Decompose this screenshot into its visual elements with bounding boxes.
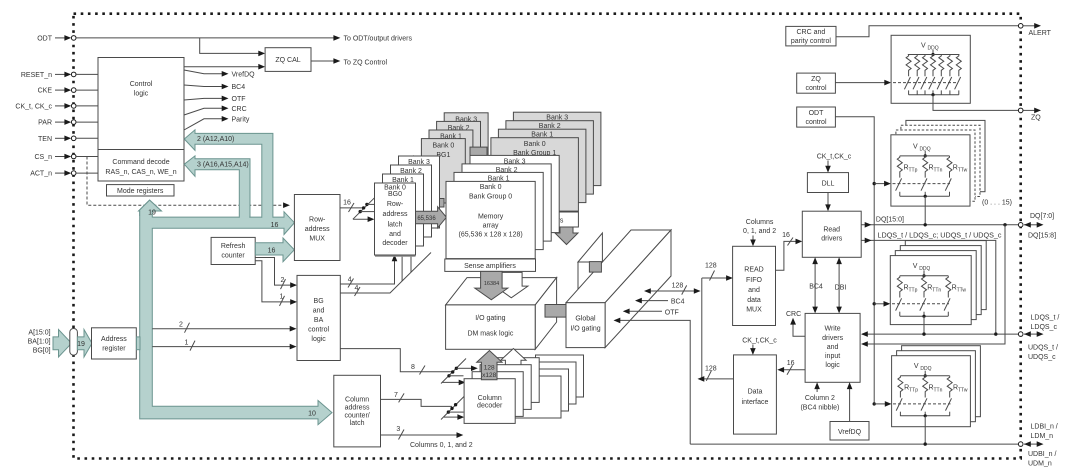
svg-text:OTF: OTF [665, 309, 679, 316]
svg-text:ALERT: ALERT [1029, 30, 1052, 37]
svg-text:(BC4 nibble): (BC4 nibble) [800, 405, 839, 412]
svg-text:Mode registers: Mode registers [117, 188, 164, 195]
svg-text:(0 . . . 15): (0 . . . 15) [982, 200, 1012, 207]
svg-text:logic: logic [311, 336, 326, 343]
svg-text:BG: BG [314, 298, 324, 305]
svg-text:16: 16 [268, 248, 276, 255]
svg-text:Columns: Columns [746, 219, 774, 226]
svg-text:TTn: TTn [934, 168, 943, 174]
svg-text:TTn: TTn [934, 387, 943, 393]
svg-text:CRC: CRC [786, 311, 801, 318]
svg-text:counter: counter [221, 253, 245, 260]
svg-text:Read: Read [823, 226, 840, 233]
svg-text:16: 16 [782, 232, 790, 239]
svg-text:Data: Data [748, 389, 763, 396]
svg-text:READ: READ [744, 267, 763, 274]
svg-text:TTw: TTw [958, 168, 968, 174]
svg-text:CK_t,CK_c: CK_t,CK_c [817, 153, 852, 160]
svg-text:CRC: CRC [232, 106, 247, 113]
svg-text:ODT: ODT [809, 110, 825, 117]
svg-text:CKE: CKE [38, 88, 53, 95]
svg-text:BG[0]: BG[0] [33, 348, 51, 355]
svg-text:I/O gating: I/O gating [475, 315, 505, 322]
svg-text:TTp: TTp [909, 387, 918, 393]
svg-text:1: 1 [185, 339, 189, 346]
svg-text:control: control [308, 327, 329, 334]
svg-text:3 (A16,A15,A14): 3 (A16,A15,A14) [197, 162, 249, 169]
svg-text:ZQ CAL: ZQ CAL [275, 57, 300, 64]
svg-text:register: register [102, 346, 126, 353]
svg-text:V: V [921, 43, 926, 50]
svg-text:decoder: decoder [382, 240, 408, 247]
svg-text:interface: interface [742, 399, 769, 406]
svg-text:latch: latch [388, 221, 403, 228]
svg-text:0, 1, and 2: 0, 1, and 2 [743, 228, 776, 235]
svg-text:input: input [825, 353, 840, 360]
svg-text:CK_t, CK_c: CK_t, CK_c [15, 103, 52, 110]
svg-text:Row-: Row- [387, 201, 404, 208]
svg-text:PAR: PAR [38, 120, 52, 127]
svg-text:data: data [747, 297, 761, 304]
svg-text:Bank Group 0: Bank Group 0 [469, 194, 512, 201]
svg-text:TTp: TTp [909, 168, 918, 174]
svg-text:8: 8 [411, 364, 415, 371]
svg-text:counter/: counter/ [344, 412, 369, 419]
svg-text:BA: BA [314, 317, 324, 324]
svg-text:ODT: ODT [37, 35, 53, 42]
svg-text:65,536: 65,536 [417, 216, 436, 222]
svg-text:Address: Address [101, 336, 127, 343]
svg-text:10: 10 [308, 411, 316, 418]
svg-text:2: 2 [179, 322, 183, 329]
svg-text:TTn: TTn [932, 287, 941, 293]
svg-text:UDM_n: UDM_n [1028, 460, 1052, 467]
svg-text:DBI: DBI [835, 284, 847, 291]
svg-text:Bank 0: Bank 0 [433, 142, 455, 149]
svg-text:VrefDQ: VrefDQ [232, 71, 256, 78]
svg-text:16: 16 [343, 200, 351, 207]
svg-text:BG0: BG0 [388, 191, 402, 198]
svg-text:To ODT/output drivers: To ODT/output drivers [344, 35, 413, 42]
svg-text:16: 16 [787, 360, 795, 367]
svg-text:Control: Control [130, 81, 153, 88]
svg-text:and: and [313, 308, 325, 315]
svg-text:LDQS_c: LDQS_c [1031, 324, 1058, 331]
svg-text:and: and [389, 231, 401, 238]
svg-text:Memory: Memory [478, 213, 504, 220]
svg-text:BC4: BC4 [809, 283, 823, 290]
svg-text:Parity: Parity [232, 116, 250, 123]
svg-text:Bank 0: Bank 0 [524, 141, 546, 148]
svg-text:parity control: parity control [791, 38, 832, 45]
svg-text:128: 128 [672, 282, 684, 289]
svg-text:DDQ: DDQ [919, 266, 930, 272]
svg-text:CRC and: CRC and [797, 29, 826, 36]
svg-text:BC4: BC4 [232, 84, 246, 91]
svg-text:logic: logic [134, 91, 149, 98]
svg-text:ZQ: ZQ [811, 76, 821, 83]
svg-text:address: address [345, 404, 370, 411]
svg-text:drivers: drivers [821, 236, 843, 243]
svg-text:control: control [805, 119, 826, 126]
svg-text:7: 7 [394, 392, 398, 399]
svg-text:LDM_n: LDM_n [1031, 433, 1054, 440]
svg-text:Columns 0, 1, and 2: Columns 0, 1, and 2 [410, 442, 473, 449]
svg-text:Column: Column [478, 395, 502, 402]
svg-text:Column: Column [345, 397, 369, 404]
svg-text:19: 19 [77, 341, 85, 348]
svg-text:TEN: TEN [38, 136, 52, 143]
svg-text:V: V [914, 363, 919, 370]
svg-text:Bank 0: Bank 0 [480, 184, 502, 191]
svg-text:Command decode: Command decode [112, 159, 169, 166]
svg-text:2 (A12,A10): 2 (A12,A10) [197, 136, 234, 143]
svg-text:V: V [913, 144, 918, 151]
svg-text:Sense amplifiers: Sense amplifiers [464, 263, 516, 270]
svg-text:address: address [383, 211, 408, 218]
svg-text:decoder: decoder [477, 403, 503, 410]
svg-text:ZQ: ZQ [1031, 114, 1041, 121]
svg-text:DQ[15:8]: DQ[15:8] [1028, 232, 1056, 239]
svg-text:DLL: DLL [822, 181, 835, 188]
svg-text:BC4: BC4 [671, 299, 685, 306]
svg-text:MUX: MUX [746, 306, 762, 313]
svg-text:UDQS_c: UDQS_c [1028, 354, 1056, 361]
svg-text:and: and [748, 287, 760, 294]
svg-text:TTp: TTp [909, 287, 918, 293]
svg-text:UDQS_t /: UDQS_t / [1028, 345, 1058, 352]
svg-text:1: 1 [280, 293, 284, 300]
svg-text:DQ[15:0]: DQ[15:0] [876, 216, 904, 223]
svg-text:control: control [805, 85, 826, 92]
svg-text:V: V [913, 263, 918, 270]
svg-text:LDBI_n /: LDBI_n / [1031, 423, 1058, 430]
svg-text:Global: Global [575, 316, 596, 323]
svg-text:128: 128 [484, 364, 495, 371]
svg-text:LDQS_t / LDQS_c; UDQS_t / UDQS: LDQS_t / LDQS_c; UDQS_t / UDQS_c [878, 232, 1003, 239]
svg-text:TTw: TTw [957, 287, 967, 293]
svg-text:Column 2: Column 2 [805, 395, 835, 402]
svg-text:3: 3 [396, 426, 400, 433]
svg-text:RESET_n: RESET_n [21, 72, 52, 79]
svg-text:DQ[7:0]: DQ[7:0] [1030, 213, 1054, 220]
svg-text:BA[1:0]: BA[1:0] [28, 339, 51, 346]
svg-text:Write: Write [824, 326, 840, 333]
svg-text:MUX: MUX [309, 236, 325, 243]
svg-text:array: array [483, 222, 499, 229]
svg-text:address: address [305, 226, 330, 233]
svg-text:I/O gating: I/O gating [570, 326, 600, 333]
svg-text:latch: latch [350, 420, 365, 427]
svg-text:RAS_n, CAS_n, WE_n: RAS_n, CAS_n, WE_n [105, 169, 176, 176]
svg-text:A[15:0]: A[15:0] [28, 329, 50, 336]
svg-text:TTw: TTw [958, 387, 968, 393]
svg-text:FIFO: FIFO [746, 277, 762, 284]
svg-text:DM mask logic: DM mask logic [467, 330, 513, 337]
svg-text:DDQ: DDQ [920, 366, 931, 372]
svg-text:LDQS_t /: LDQS_t / [1031, 315, 1060, 322]
svg-text:logic: logic [825, 362, 840, 369]
svg-text:CK_t,CK_c: CK_t,CK_c [742, 337, 777, 344]
svg-text:UDBI_n /: UDBI_n / [1028, 451, 1056, 458]
svg-text:128: 128 [705, 262, 717, 269]
svg-text:drivers: drivers [822, 335, 844, 342]
svg-text:Row-: Row- [309, 217, 326, 224]
svg-text:To ZQ Control: To ZQ Control [344, 60, 388, 67]
svg-text:(65,536 x 128 x 128): (65,536 x 128 x 128) [458, 231, 522, 238]
svg-text:OTF: OTF [232, 96, 246, 103]
svg-text:19: 19 [148, 210, 156, 217]
svg-text:Refresh: Refresh [221, 243, 246, 250]
svg-text:16384: 16384 [484, 281, 499, 287]
svg-text:2: 2 [281, 277, 285, 284]
svg-text:VrefDQ: VrefDQ [838, 429, 862, 436]
svg-text:ACT_n: ACT_n [30, 171, 52, 178]
svg-text:CS_n: CS_n [34, 154, 52, 161]
svg-text:16: 16 [271, 222, 279, 229]
svg-text:and: and [827, 344, 839, 351]
svg-text:x128: x128 [482, 372, 496, 379]
